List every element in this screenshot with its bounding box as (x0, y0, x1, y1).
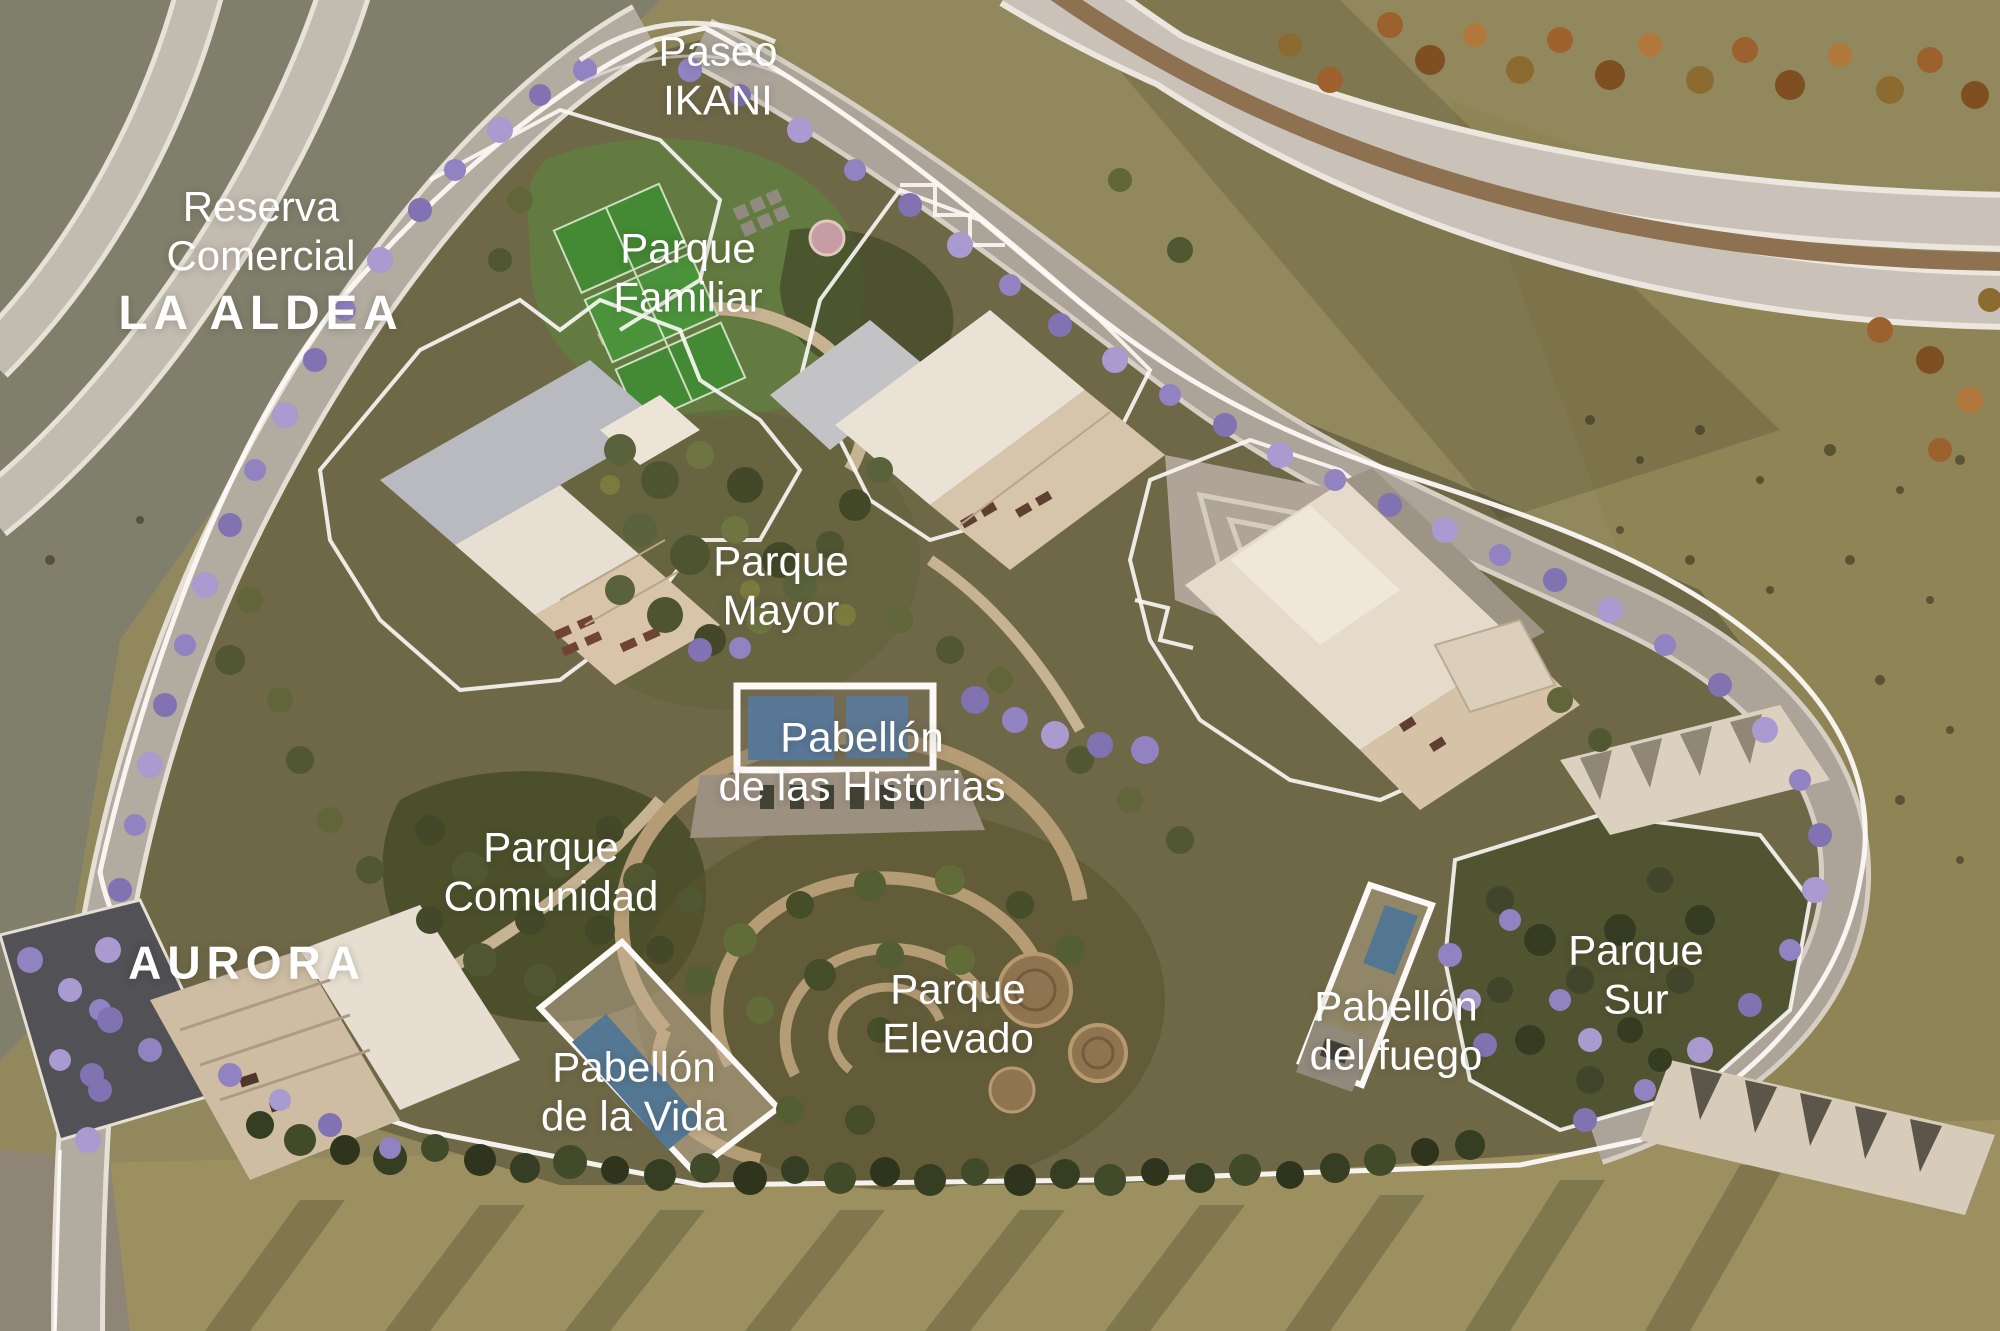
label-pabellon-historias: Pabellón de las Historias (718, 713, 1005, 810)
label-pabellon-vida: Pabellón de la Vida (541, 1043, 727, 1140)
masterplan-map: Paseo IKANI Reserva Comercial LA ALDEA P… (0, 0, 2000, 1331)
label-aurora: AURORA (128, 936, 366, 989)
label-reserva-comercial-la-aldea: Reserva Comercial LA ALDEA (118, 183, 403, 341)
label-parque-mayor: Parque Mayor (713, 537, 848, 634)
label-la-aldea: LA ALDEA (118, 286, 403, 341)
label-parque-sur: Parque Sur (1568, 926, 1703, 1023)
label-parque-familiar: Parque Familiar (613, 224, 762, 321)
label-reserva-comercial: Reserva Comercial (166, 183, 355, 280)
label-pabellon-fuego: Pabellón del fuego (1310, 982, 1483, 1079)
label-paseo-ikani: Paseo IKANI (658, 27, 777, 124)
label-parque-comunidad: Parque Comunidad (444, 823, 659, 920)
label-parque-elevado: Parque Elevado (882, 965, 1034, 1062)
